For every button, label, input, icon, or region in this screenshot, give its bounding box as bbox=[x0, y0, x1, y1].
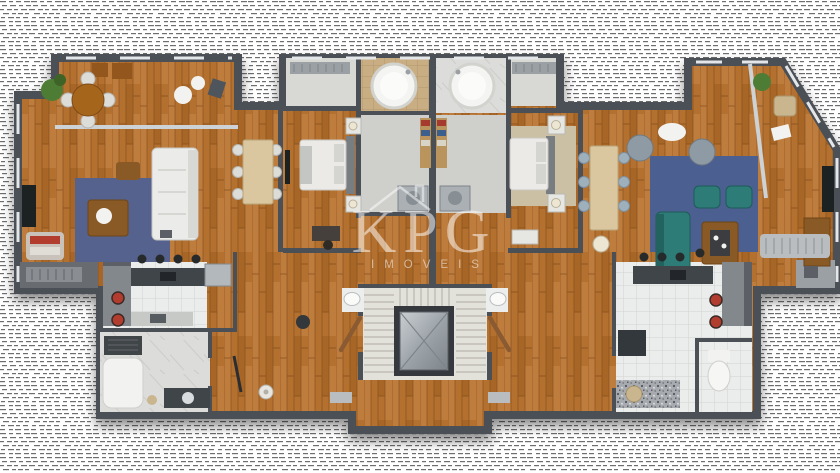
lamp-icon bbox=[552, 199, 561, 208]
faucet-icon bbox=[406, 70, 411, 75]
red-stool bbox=[710, 316, 722, 328]
pillow bbox=[334, 144, 344, 162]
floor-lamp bbox=[593, 236, 609, 252]
terrace-pouf bbox=[174, 86, 192, 104]
red-stool bbox=[112, 314, 124, 326]
desk-chair bbox=[323, 240, 333, 250]
round-basin bbox=[626, 386, 642, 402]
coffee-table-right bbox=[702, 222, 738, 264]
dresser-right bbox=[512, 230, 538, 244]
bar-stool bbox=[640, 253, 649, 262]
teal-armchair bbox=[694, 186, 720, 208]
bar-stool bbox=[192, 255, 201, 264]
oval-side-table bbox=[658, 123, 686, 141]
dining-chair bbox=[579, 153, 590, 164]
lamp-icon bbox=[349, 122, 357, 130]
wardrobe-left bbox=[290, 62, 350, 74]
sink bbox=[490, 293, 506, 306]
dishwasher bbox=[205, 264, 231, 286]
bar-stool bbox=[138, 255, 147, 264]
dining-table-right bbox=[590, 146, 618, 230]
plant-icon bbox=[54, 74, 66, 86]
watermark: KPG IMOVEIS bbox=[351, 186, 496, 271]
bathroom-left bbox=[372, 64, 416, 108]
dining-chair bbox=[619, 177, 630, 188]
dining-chair bbox=[233, 167, 244, 178]
bathtub bbox=[103, 358, 143, 408]
side-table-left bbox=[116, 162, 140, 180]
bar-stool bbox=[676, 253, 685, 262]
bar-stool bbox=[696, 249, 705, 258]
vanity-sink bbox=[182, 392, 194, 404]
desk-left bbox=[312, 226, 340, 241]
watermark-subtitle: IMOVEIS bbox=[371, 259, 489, 271]
floor-plan-image: KPG IMOVEIS bbox=[0, 0, 840, 473]
cooktop bbox=[160, 272, 176, 281]
dining-chair bbox=[579, 177, 590, 188]
pillow bbox=[536, 142, 546, 162]
red-stool bbox=[710, 294, 722, 306]
floor-plan-svg: KPG IMOVEIS bbox=[0, 0, 840, 473]
bedroom-tv-left bbox=[285, 150, 290, 184]
bed-throw bbox=[300, 146, 312, 184]
terrace-pouf bbox=[191, 76, 205, 90]
lounge-chair-left bbox=[26, 232, 64, 260]
fridge bbox=[618, 330, 646, 356]
balcony-item-right bbox=[804, 266, 818, 278]
swivel-chair bbox=[689, 139, 715, 165]
paper-roll-core bbox=[264, 390, 269, 395]
terrace-cabinet bbox=[112, 63, 132, 79]
watermark-brand: KPG bbox=[351, 198, 496, 266]
wardrobe-right bbox=[512, 62, 556, 74]
door-mat-left bbox=[330, 392, 352, 403]
dining-chair bbox=[579, 201, 590, 212]
powder-room-left bbox=[342, 288, 364, 312]
kitchen-sink bbox=[670, 270, 686, 280]
dining-chair bbox=[233, 145, 244, 156]
terrace-cabinet bbox=[92, 63, 108, 77]
round-bathtub-inner bbox=[458, 72, 486, 100]
tv-left bbox=[22, 185, 36, 227]
bathroom-right bbox=[450, 64, 494, 108]
terrace-round-table bbox=[72, 84, 104, 116]
lamp-icon bbox=[552, 121, 561, 130]
teal-armchair bbox=[726, 186, 752, 208]
bar-stool bbox=[658, 253, 667, 262]
toilet-tank bbox=[708, 350, 730, 362]
dining-chair bbox=[619, 153, 630, 164]
basket bbox=[147, 395, 157, 405]
tv-right bbox=[822, 166, 834, 212]
wc-right bbox=[708, 350, 730, 391]
coffee-table-left bbox=[88, 200, 128, 236]
toilet bbox=[708, 361, 730, 391]
swivel-chair bbox=[627, 135, 653, 161]
faucet-icon bbox=[456, 70, 461, 75]
wicker-chair bbox=[774, 96, 796, 116]
balcony-bench-left bbox=[26, 267, 82, 282]
pouf-dark-left bbox=[296, 315, 310, 329]
pillow bbox=[334, 166, 344, 184]
chaise-right bbox=[760, 234, 830, 258]
bar-stool bbox=[156, 255, 165, 264]
pillow bbox=[536, 164, 546, 184]
round-bathtub-inner bbox=[380, 72, 408, 100]
sink bbox=[344, 293, 360, 306]
red-stool bbox=[112, 292, 124, 304]
kitchen-sink bbox=[150, 314, 166, 323]
plant-icon bbox=[753, 73, 771, 91]
bar-stool bbox=[174, 255, 183, 264]
door-mat-right bbox=[488, 392, 510, 403]
sofa-left bbox=[152, 148, 198, 240]
powder-room-right bbox=[486, 288, 508, 312]
dining-left bbox=[233, 140, 282, 204]
dining-chair bbox=[619, 201, 630, 212]
headboard bbox=[346, 136, 355, 194]
dining-table-left bbox=[243, 140, 273, 204]
dining-chair bbox=[233, 189, 244, 200]
